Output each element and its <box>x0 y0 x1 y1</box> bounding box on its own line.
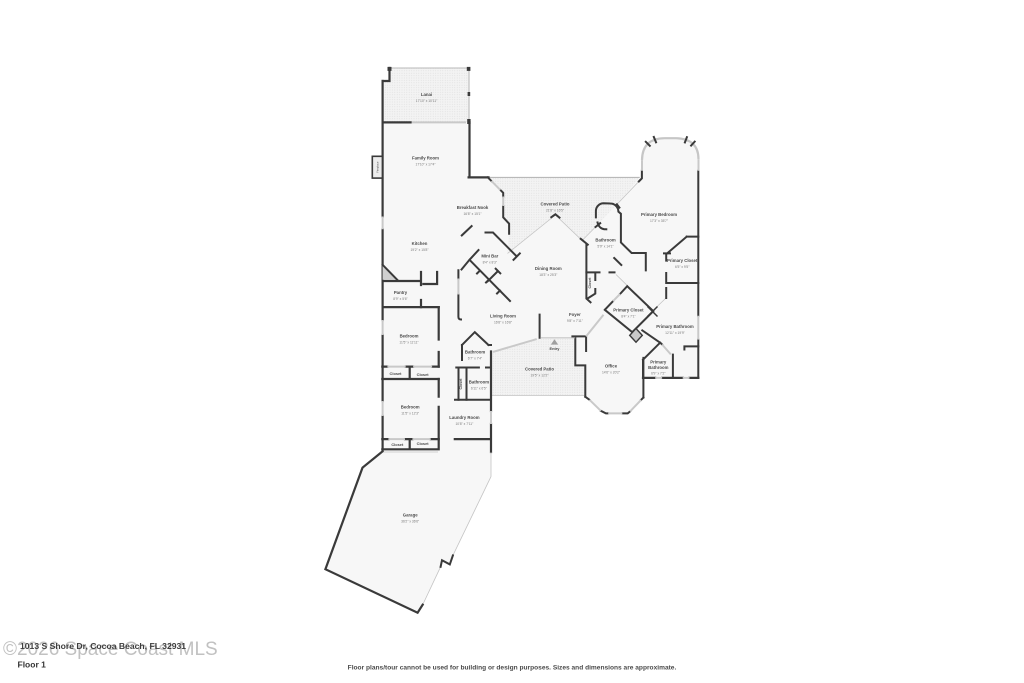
svg-text:Primary Bathroom: Primary Bathroom <box>656 324 694 329</box>
svg-text:Garage: Garage <box>403 513 418 518</box>
svg-text:6'5" x 9'5": 6'5" x 9'5" <box>675 265 690 269</box>
svg-text:Bathroom: Bathroom <box>648 365 668 370</box>
svg-text:Covered Patio: Covered Patio <box>525 367 554 372</box>
svg-text:19'5" x 12'2": 19'5" x 12'2" <box>530 374 549 378</box>
svg-text:Foyer: Foyer <box>569 312 581 317</box>
svg-text:5'9" x 14'1": 5'9" x 14'1" <box>597 245 614 249</box>
svg-text:Living Room: Living Room <box>490 314 516 319</box>
svg-text:Fireplace: Fireplace <box>376 161 380 173</box>
svg-text:6'9" x 7'2": 6'9" x 7'2" <box>651 372 666 376</box>
svg-text:Office: Office <box>605 363 618 368</box>
svg-text:Bathroom: Bathroom <box>469 379 489 384</box>
svg-text:12'11" x 19'9": 12'11" x 19'9" <box>665 331 685 335</box>
svg-text:19'2" x 15'8": 19'2" x 15'8" <box>410 248 429 252</box>
svg-text:Dining Room: Dining Room <box>535 266 562 271</box>
svg-text:Primary Closet: Primary Closet <box>613 307 644 312</box>
svg-text:Floor 1: Floor 1 <box>18 660 47 670</box>
svg-text:16'8" x 16'8": 16'8" x 16'8" <box>494 321 513 325</box>
svg-text:Primary Closet: Primary Closet <box>667 258 698 263</box>
svg-text:8'9" x 5'6": 8'9" x 5'6" <box>393 297 408 301</box>
svg-text:Entry: Entry <box>550 346 561 351</box>
svg-text:Laundry Room: Laundry Room <box>449 415 479 420</box>
svg-text:Bathroom: Bathroom <box>465 350 485 355</box>
svg-text:21'8" x 16'5": 21'8" x 16'5" <box>546 209 565 213</box>
svg-text:11'5" x 11'11": 11'5" x 11'11" <box>399 340 419 344</box>
svg-text:Covered Patio: Covered Patio <box>541 202 570 207</box>
svg-text:Closet: Closet <box>390 371 403 376</box>
svg-text:Bathroom: Bathroom <box>595 238 615 243</box>
svg-text:Floor plans/tour cannot be use: Floor plans/tour cannot be used for buil… <box>348 665 677 672</box>
svg-text:6'7" x 7'4": 6'7" x 7'4" <box>468 357 483 361</box>
svg-text:Bedroom: Bedroom <box>401 404 420 409</box>
svg-text:Primary Bedroom: Primary Bedroom <box>641 212 677 217</box>
svg-text:Mini Bar: Mini Bar <box>481 254 498 259</box>
svg-text:Closet: Closet <box>459 378 463 390</box>
svg-text:17'10" x 17'4": 17'10" x 17'4" <box>416 163 437 167</box>
svg-text:Closet: Closet <box>417 441 430 446</box>
svg-text:Lanai: Lanai <box>421 92 432 97</box>
svg-text:17'10" x 10'11": 17'10" x 10'11" <box>416 99 438 103</box>
svg-text:17'3" x 35'7": 17'3" x 35'7" <box>650 219 669 223</box>
svg-text:11'5" x 12'3": 11'5" x 12'3" <box>401 411 420 415</box>
svg-text:8'4" x 8'3": 8'4" x 8'3" <box>483 261 498 265</box>
svg-text:18'3" x 25'3": 18'3" x 25'3" <box>539 273 558 277</box>
svg-text:Kitchen: Kitchen <box>412 241 428 246</box>
svg-text:16'8" x 15'1": 16'8" x 15'1" <box>463 212 482 216</box>
svg-text:Family Room: Family Room <box>412 156 439 161</box>
svg-text:9'8" x 7'11": 9'8" x 7'11" <box>567 319 584 323</box>
svg-text:Bedroom: Bedroom <box>400 333 419 338</box>
svg-text:Pantry: Pantry <box>394 290 408 295</box>
svg-text:36'2" x 36'6": 36'2" x 36'6" <box>401 520 420 524</box>
svg-text:1013 S Shore Dr, Cocoa Beach,: 1013 S Shore Dr, Cocoa Beach, FL 32931 <box>20 641 186 651</box>
svg-text:8'4" x 7'1": 8'4" x 7'1" <box>621 314 636 318</box>
svg-text:Closet: Closet <box>588 277 592 289</box>
svg-text:Closet: Closet <box>417 372 430 377</box>
svg-text:Primary: Primary <box>650 360 667 365</box>
svg-text:10'8" x 7'11": 10'8" x 7'11" <box>455 422 474 426</box>
svg-text:6'11" x 6'5": 6'11" x 6'5" <box>471 386 488 390</box>
svg-text:Closet: Closet <box>391 442 404 447</box>
svg-text:Breakfast Nook: Breakfast Nook <box>457 205 489 210</box>
svg-text:14'6" x 20'2": 14'6" x 20'2" <box>602 370 621 374</box>
